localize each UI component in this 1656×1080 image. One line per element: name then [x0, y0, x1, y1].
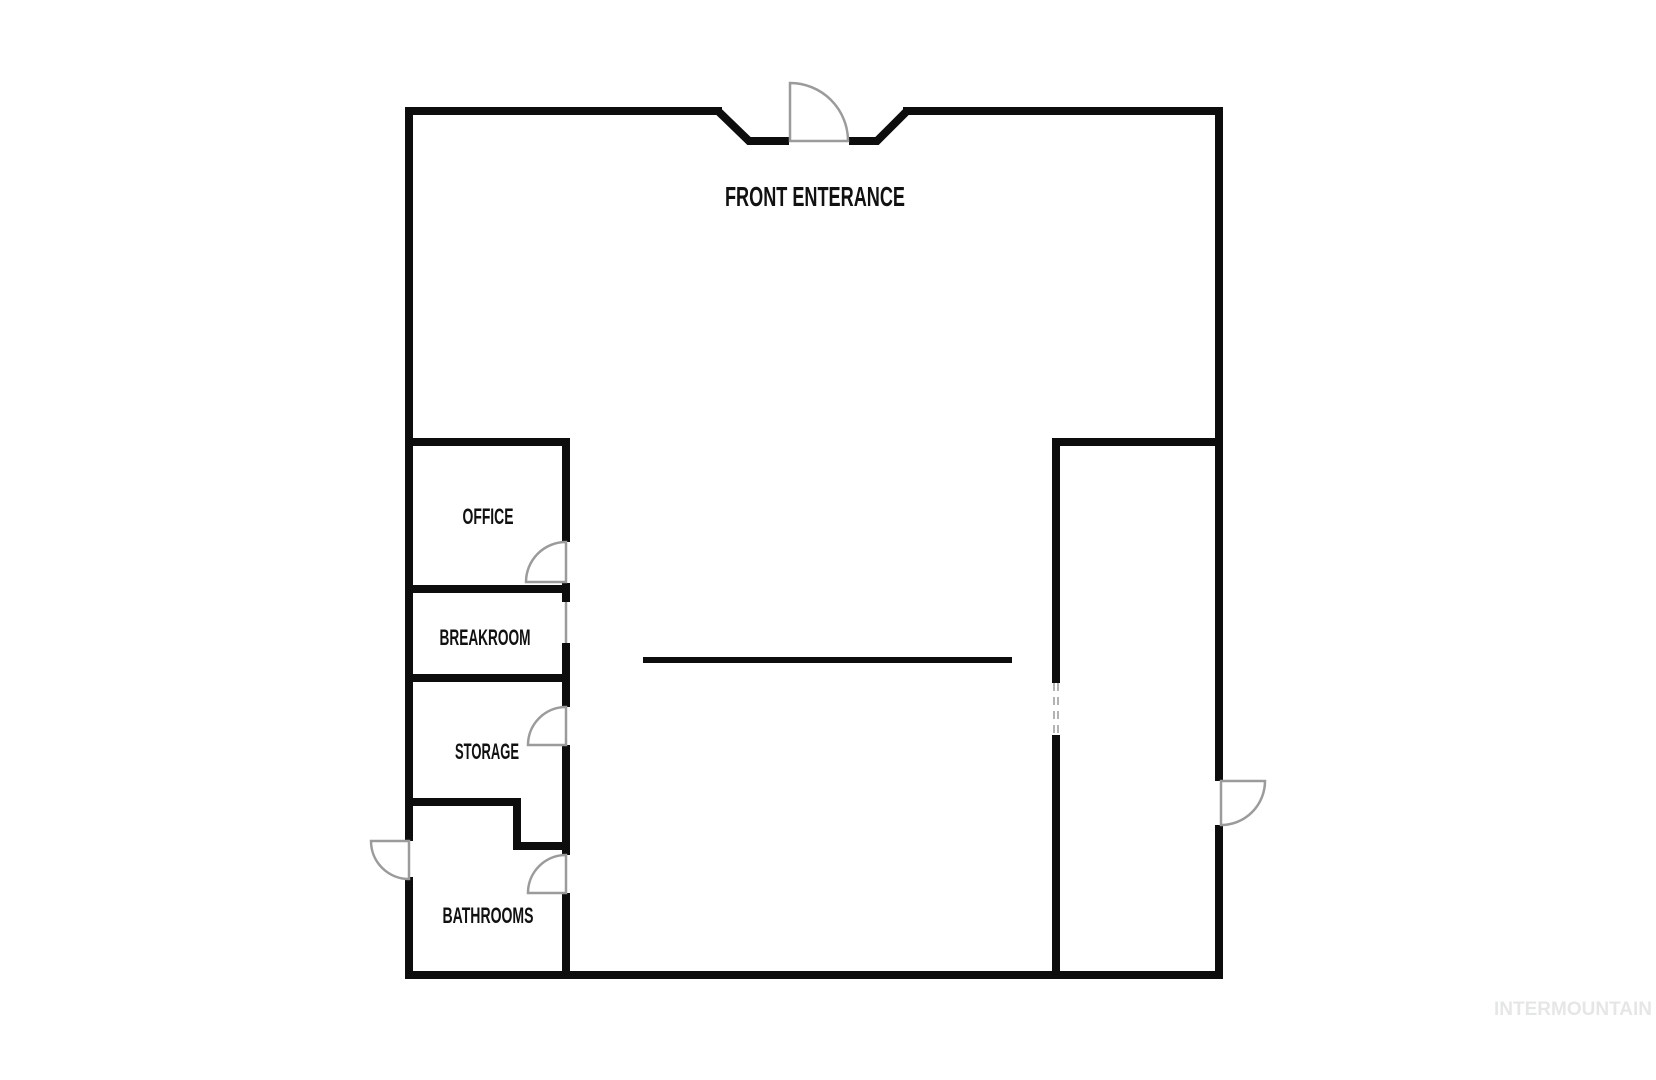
bathrooms-label: BATHROOMS [443, 903, 534, 928]
wall-bathroom-top [513, 842, 570, 850]
watermark-text: INTERMOUNTAIN [1494, 999, 1652, 1020]
bathroom-door-arc-icon [528, 855, 566, 893]
storage-label: STORAGE [455, 739, 519, 764]
floor-plan-page: FRONT ENTERANCE OFFICE BREAKROOM STORAGE… [0, 0, 1656, 1080]
floor-plan-canvas: FRONT ENTERANCE OFFICE BREAKROOM STORAGE… [0, 0, 1656, 1080]
wall-storage-bottom [405, 798, 521, 806]
wall-column-right-seg2 [562, 583, 570, 602]
wall-outer-bottom [405, 971, 1223, 979]
wall-column-right-seg4 [562, 745, 570, 855]
breakroom-label: BREAKROOM [440, 625, 531, 650]
room-labels: FRONT ENTERANCE OFFICE BREAKROOM STORAGE… [440, 181, 906, 928]
front-entrance-label: FRONT ENTERANCE [725, 181, 905, 212]
entrance-recess-right [849, 111, 907, 141]
wall-center-partition [643, 657, 1012, 663]
wall-column-right-seg1 [562, 438, 570, 542]
storage-door-arc-icon [528, 707, 566, 745]
walls [405, 107, 1223, 979]
wall-right-column-left-upper [1052, 438, 1060, 683]
office-door-arc-icon [526, 542, 566, 582]
wall-breakroom-bottom [405, 674, 570, 682]
wall-outer-top-left [405, 107, 722, 115]
wall-right-column-top [1052, 438, 1223, 446]
office-label: OFFICE [463, 504, 514, 529]
wall-outer-left-upper [405, 107, 413, 841]
wall-right-column-left-lower [1052, 735, 1060, 979]
wall-column-right-seg3 [562, 643, 570, 707]
wall-office-bottom [405, 585, 570, 593]
left-exterior-door-arc-icon [371, 841, 409, 879]
wall-outer-right-lower [1215, 825, 1223, 979]
wall-outer-top-right [903, 107, 1223, 115]
entrance-recess-left [718, 111, 789, 141]
front-entrance-door-arc-icon [790, 83, 848, 141]
right-exterior-door-arc-icon [1221, 781, 1265, 825]
wall-column-right-seg5 [562, 893, 570, 979]
wall-office-top [405, 438, 570, 446]
dashed-opening [1054, 683, 1058, 735]
wall-outer-left-lower [405, 877, 413, 979]
